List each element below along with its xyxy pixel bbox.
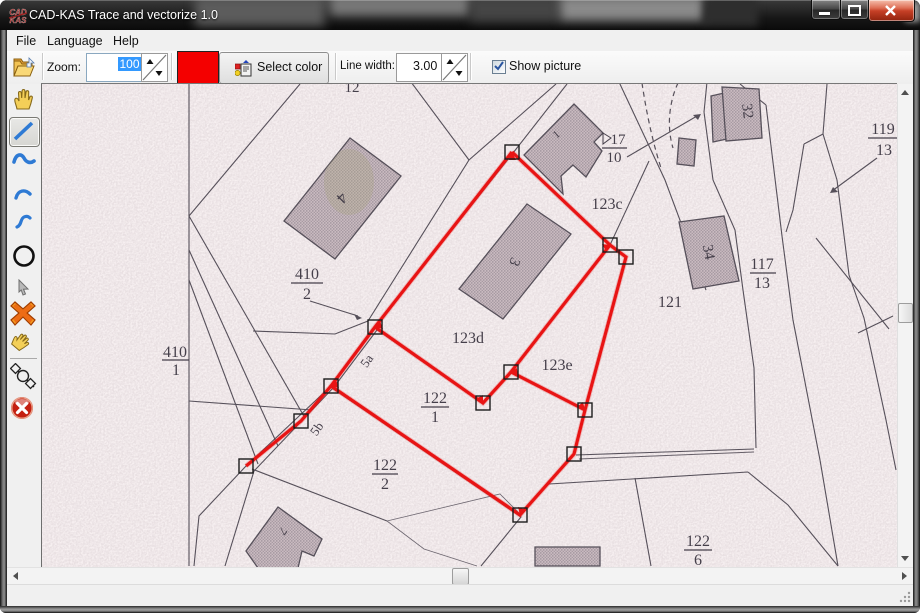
svg-text:119: 119 (871, 121, 894, 138)
svg-text:13: 13 (876, 142, 892, 159)
svg-text:122: 122 (686, 533, 710, 550)
svg-text:123e: 123e (541, 357, 572, 374)
svg-text:2: 2 (381, 476, 389, 493)
svg-text:117: 117 (750, 256, 773, 273)
svg-text:121: 121 (658, 294, 682, 311)
svg-text:6: 6 (694, 552, 702, 567)
svg-text:1: 1 (172, 362, 180, 379)
svg-text:123c: 123c (591, 196, 622, 213)
svg-text:122: 122 (373, 457, 397, 474)
svg-text:32: 32 (738, 103, 756, 120)
svg-text:410: 410 (295, 266, 319, 283)
svg-text:410: 410 (163, 344, 187, 361)
svg-text:1: 1 (431, 409, 439, 426)
svg-text:10: 10 (607, 150, 622, 166)
svg-text:17: 17 (611, 132, 627, 148)
svg-text:2: 2 (303, 286, 311, 303)
svg-text:123d: 123d (452, 330, 484, 347)
svg-text:13: 13 (754, 275, 770, 292)
svg-text:12: 12 (345, 84, 360, 96)
svg-text:122: 122 (423, 390, 447, 407)
